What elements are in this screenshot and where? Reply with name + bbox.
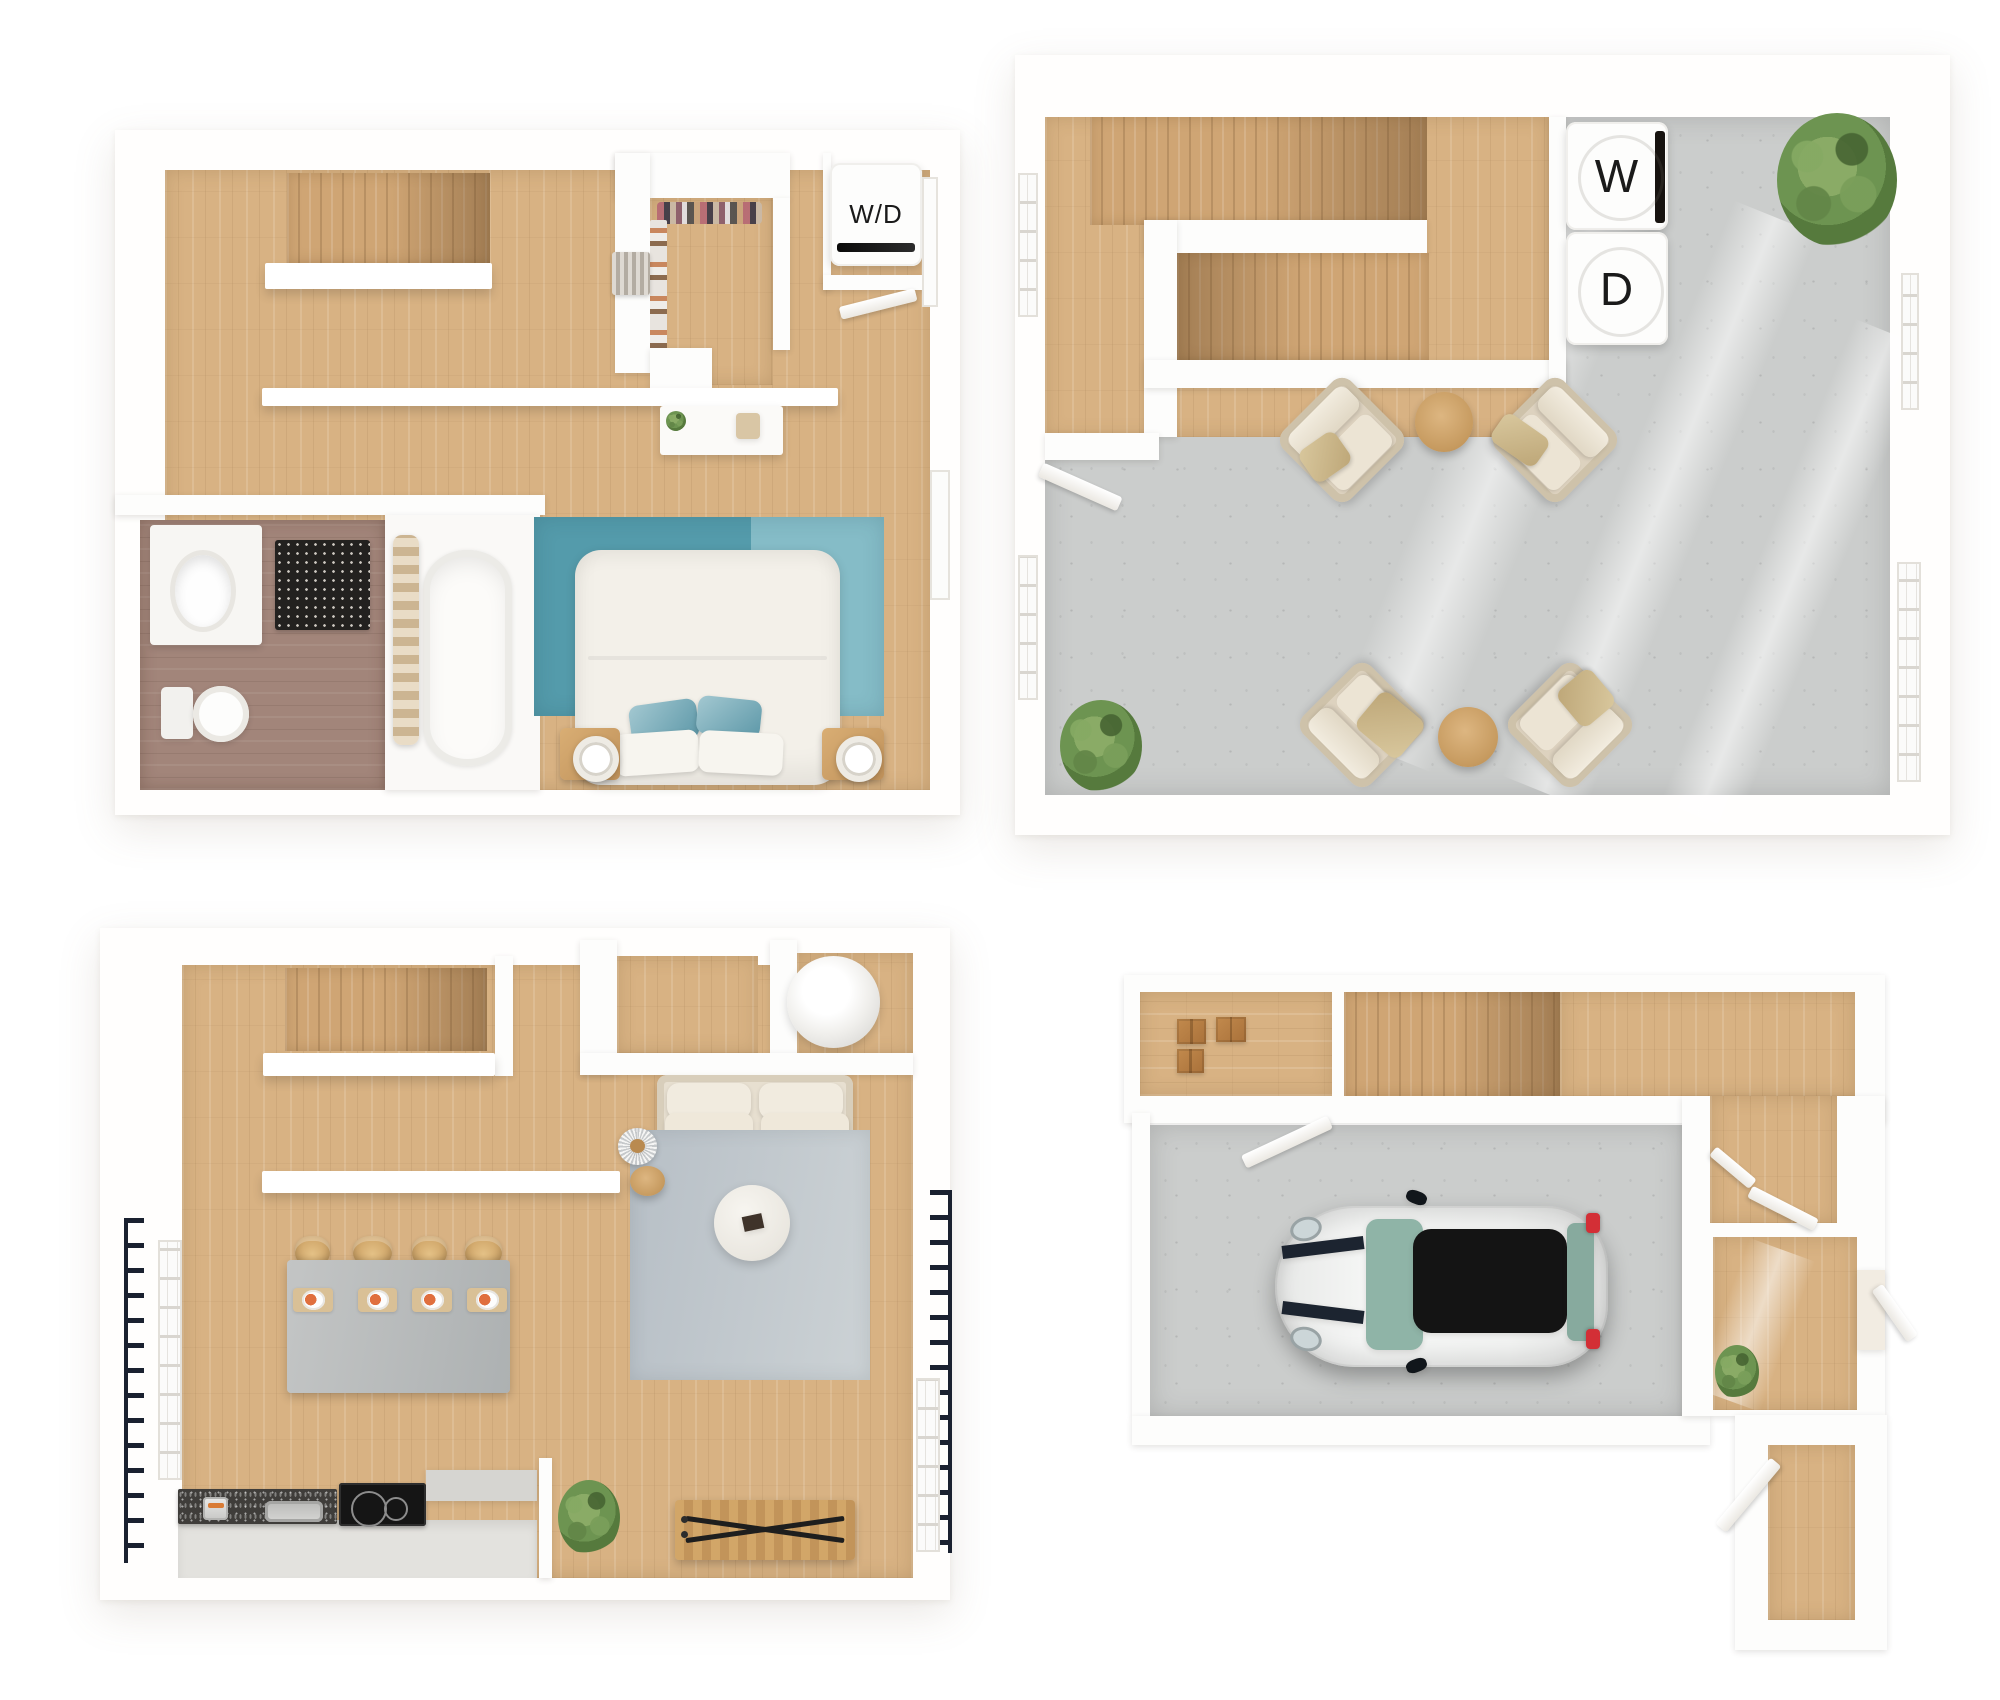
garage-wall-bottom <box>1132 1416 1710 1445</box>
console-knob-1 <box>681 1516 688 1523</box>
car-taillight-top <box>1586 1213 1600 1233</box>
shower-curtain <box>393 535 419 745</box>
window-right-lower <box>930 470 950 600</box>
side-table-bottom <box>1438 707 1498 767</box>
place-setting-2 <box>358 1288 397 1312</box>
round-side-table <box>630 1166 665 1196</box>
place-setting-1 <box>293 1288 333 1312</box>
staircase-lower-run <box>1177 253 1429 360</box>
toilet-bowl <box>193 686 249 742</box>
water-heater <box>787 956 880 1048</box>
potted-plant-corner <box>1777 113 1897 247</box>
window-right <box>916 1378 940 1552</box>
window-right-lower <box>1897 562 1921 782</box>
entry-nook-floor <box>1768 1445 1855 1620</box>
hall-wall <box>262 1171 620 1193</box>
floorplan-flex-room-level: WD <box>1015 55 1950 835</box>
floorplan-bedroom-level: W/D <box>115 130 960 815</box>
floorplan-garage-level <box>1124 965 1915 1655</box>
window-right-upper <box>1901 273 1919 410</box>
stove-burner-large <box>351 1491 387 1527</box>
floorplan-kitchen-living-level <box>100 928 950 1600</box>
laundry-nook-wall-bottom <box>823 275 933 290</box>
stair-wall-right <box>495 956 513 1076</box>
kitchen-counter-face <box>178 1520 537 1578</box>
stairwell-wall-top <box>1144 220 1427 253</box>
hanging-clothes <box>657 202 762 224</box>
landing-floor <box>617 956 758 1053</box>
bathroom-rug <box>275 540 370 630</box>
balcony-railing-left <box>124 1218 144 1563</box>
closet-wall-right <box>773 198 790 350</box>
front-door-opening <box>1857 1270 1885 1350</box>
mudroom-plant <box>1715 1345 1759 1399</box>
dryer-door-ring <box>1578 247 1664 337</box>
moving-box-1 <box>1177 1019 1206 1044</box>
upper-hall-floor <box>1560 992 1855 1096</box>
place-setting-4 <box>467 1288 507 1312</box>
washer-door-ring <box>1578 135 1664 221</box>
nightstand-lamp-left <box>573 736 619 782</box>
side-table-top <box>1415 392 1473 452</box>
entry-mat <box>612 252 650 295</box>
stair-half-wall <box>263 1053 495 1076</box>
mid-partition-wall <box>580 1053 913 1075</box>
bathroom-wall-top <box>115 495 545 515</box>
landing-wall <box>1045 433 1159 460</box>
staircase <box>287 173 490 263</box>
staircase <box>285 968 487 1051</box>
window-right-upper <box>922 177 938 307</box>
toilet-tank <box>161 687 193 739</box>
stairwell-wall-left <box>1144 220 1177 437</box>
vanity-sink <box>170 550 236 632</box>
storage-room-floor <box>1140 992 1332 1096</box>
place-setting-3 <box>412 1288 452 1312</box>
closet-wall-nub <box>650 348 712 388</box>
moving-box-3 <box>1177 1049 1204 1073</box>
window-left <box>158 1240 182 1480</box>
kitchen-sink <box>265 1501 323 1522</box>
hall-wall <box>262 388 838 406</box>
bed-pillow-white-left <box>614 729 701 777</box>
lamp-center <box>630 1139 645 1153</box>
car-rear-glass <box>1567 1223 1594 1341</box>
car-roof <box>1413 1229 1567 1333</box>
moving-box-2 <box>1216 1017 1246 1042</box>
garage-wall-left <box>1132 1113 1150 1416</box>
potted-plant-floor <box>1060 700 1142 792</box>
toaster <box>203 1497 228 1520</box>
car-taillight-bottom <box>1586 1329 1600 1349</box>
bed-pillow-white-right <box>698 730 784 776</box>
stove-burner-small <box>384 1497 408 1521</box>
kitchen-divider-wall <box>539 1458 552 1578</box>
window-left-upper <box>1018 173 1038 317</box>
window-left-lower <box>1018 555 1038 700</box>
closet-shelving <box>650 220 667 350</box>
console-knob-2 <box>681 1531 688 1538</box>
floorplan-collage: W/DWD <box>0 0 2000 1700</box>
console-plant <box>666 411 686 431</box>
bathtub <box>423 550 512 766</box>
staircase <box>1344 992 1560 1096</box>
dining-table <box>287 1260 510 1393</box>
staircase-upper-run <box>1090 117 1427 225</box>
kitchen-plant <box>558 1480 620 1555</box>
console-tray <box>736 413 760 439</box>
stair-half-wall <box>265 263 492 289</box>
nightstand-lamp-right <box>836 736 882 782</box>
kitchen-counter-end <box>426 1470 537 1501</box>
washer-dryer-control-panel <box>837 243 915 252</box>
stairwell-wall-bottom <box>1144 360 1566 388</box>
